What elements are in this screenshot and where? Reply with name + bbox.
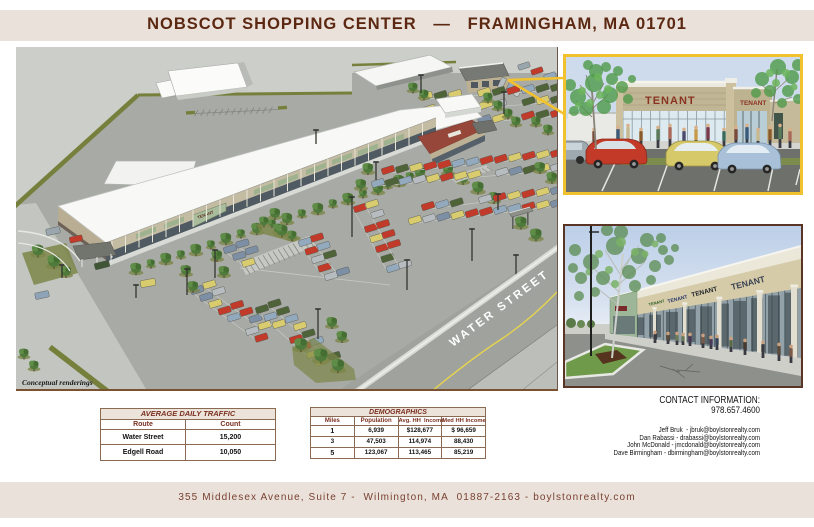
svg-text:TENANT: TENANT [740,100,766,107]
svg-text:TENANT: TENANT [645,95,696,107]
svg-text:Conceptual renderings: Conceptual renderings [22,378,93,387]
